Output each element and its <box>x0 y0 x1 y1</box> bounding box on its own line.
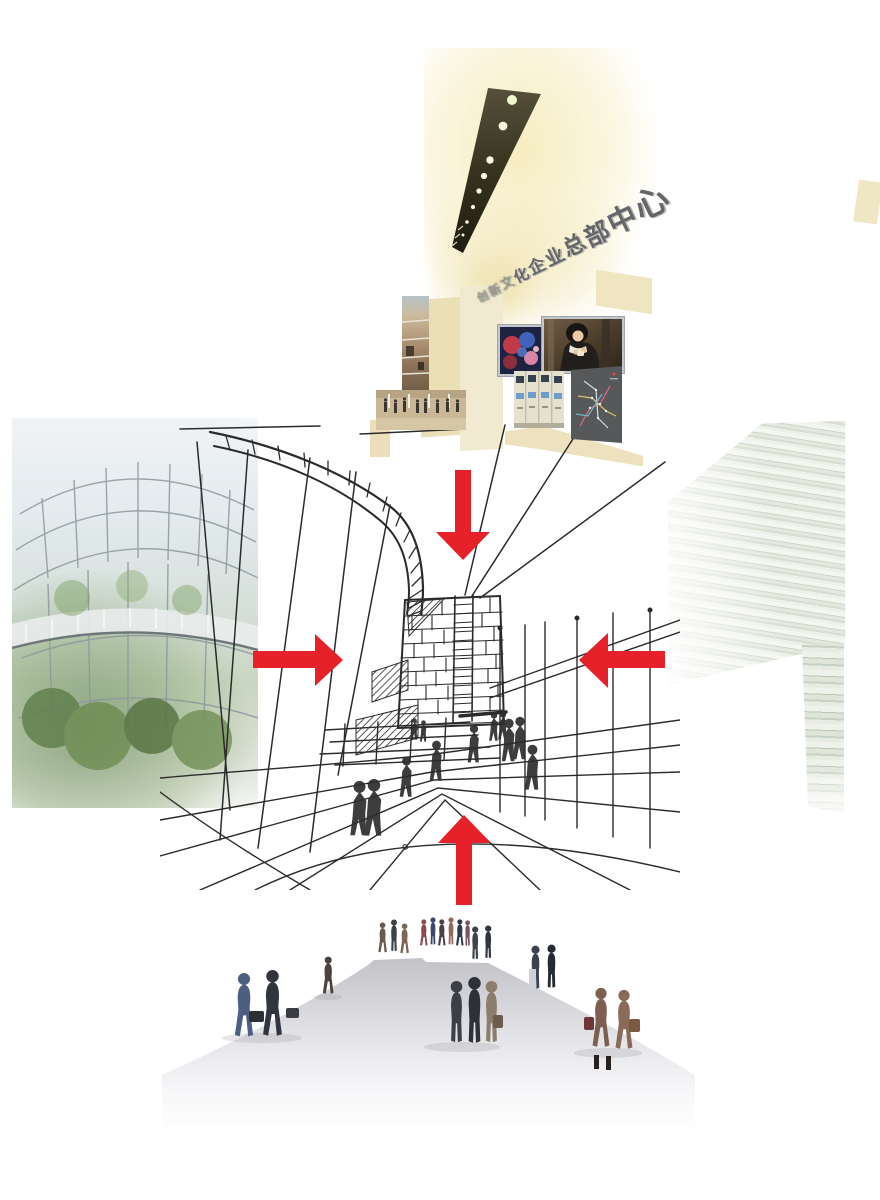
canopy-rungs <box>226 436 422 616</box>
wall-fragment <box>853 180 880 225</box>
plaza-people-cutouts <box>150 905 710 1135</box>
hatched-panels <box>356 599 444 755</box>
seam-blocks <box>453 604 472 713</box>
mall-atrium-collage <box>376 290 468 432</box>
ground-lines <box>160 720 680 890</box>
stone-wall-column-photo <box>798 643 848 813</box>
ticket-kiosks-photo <box>514 371 564 428</box>
concept-perspective-sketch <box>160 420 680 890</box>
media-art-screen-photo <box>498 325 544 376</box>
woman-tea-photo <box>542 317 624 373</box>
concept-collage-page: { "page": {"width": 880, "height": 1200,… <box>0 0 880 1200</box>
metro-map-panel <box>570 366 623 443</box>
light-track-beam <box>452 88 541 253</box>
sketch-cable <box>180 426 320 429</box>
